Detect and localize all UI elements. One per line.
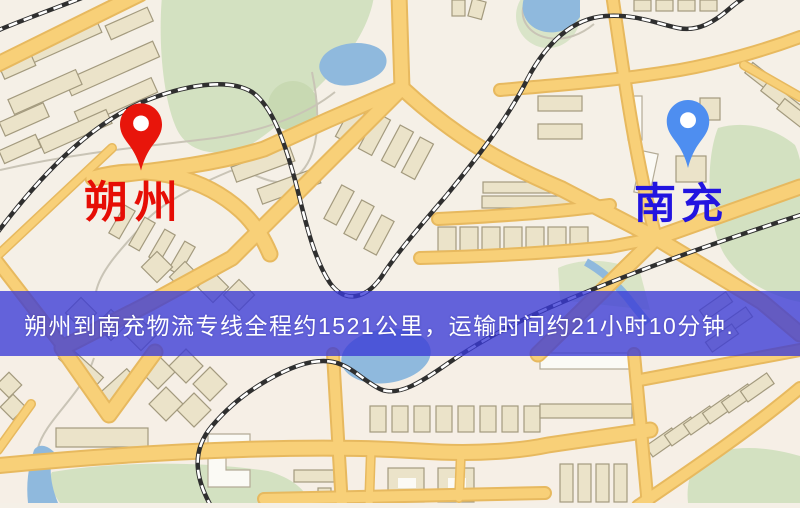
origin-pin-icon [120, 103, 162, 171]
route-info-banner: 朔州到南充物流专线全程约1521公里，运输时间约21小时10分钟. [0, 291, 800, 356]
origin-pin[interactable] [120, 103, 162, 176]
map-image[interactable] [0, 0, 800, 503]
origin-city-label: 朔州 [84, 181, 184, 225]
destination-city-label: 南充 [634, 183, 728, 225]
route-info-text: 朔州到南充物流专线全程约1521公里，运输时间约21小时10分钟. [24, 307, 734, 341]
destination-pin[interactable] [665, 100, 711, 173]
destination-pin-icon [665, 100, 711, 168]
